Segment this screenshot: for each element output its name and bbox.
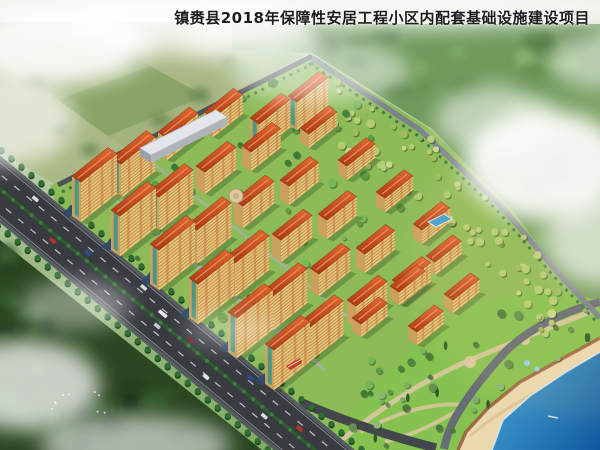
aerial-rendering [0, 0, 600, 450]
project-title: 镇赉县2018年保障性安居工程小区内配套基础设施建设项目 [174, 7, 590, 28]
rendering-frame: 镇赉县2018年保障性安居工程小区内配套基础设施建设项目 [0, 0, 600, 450]
